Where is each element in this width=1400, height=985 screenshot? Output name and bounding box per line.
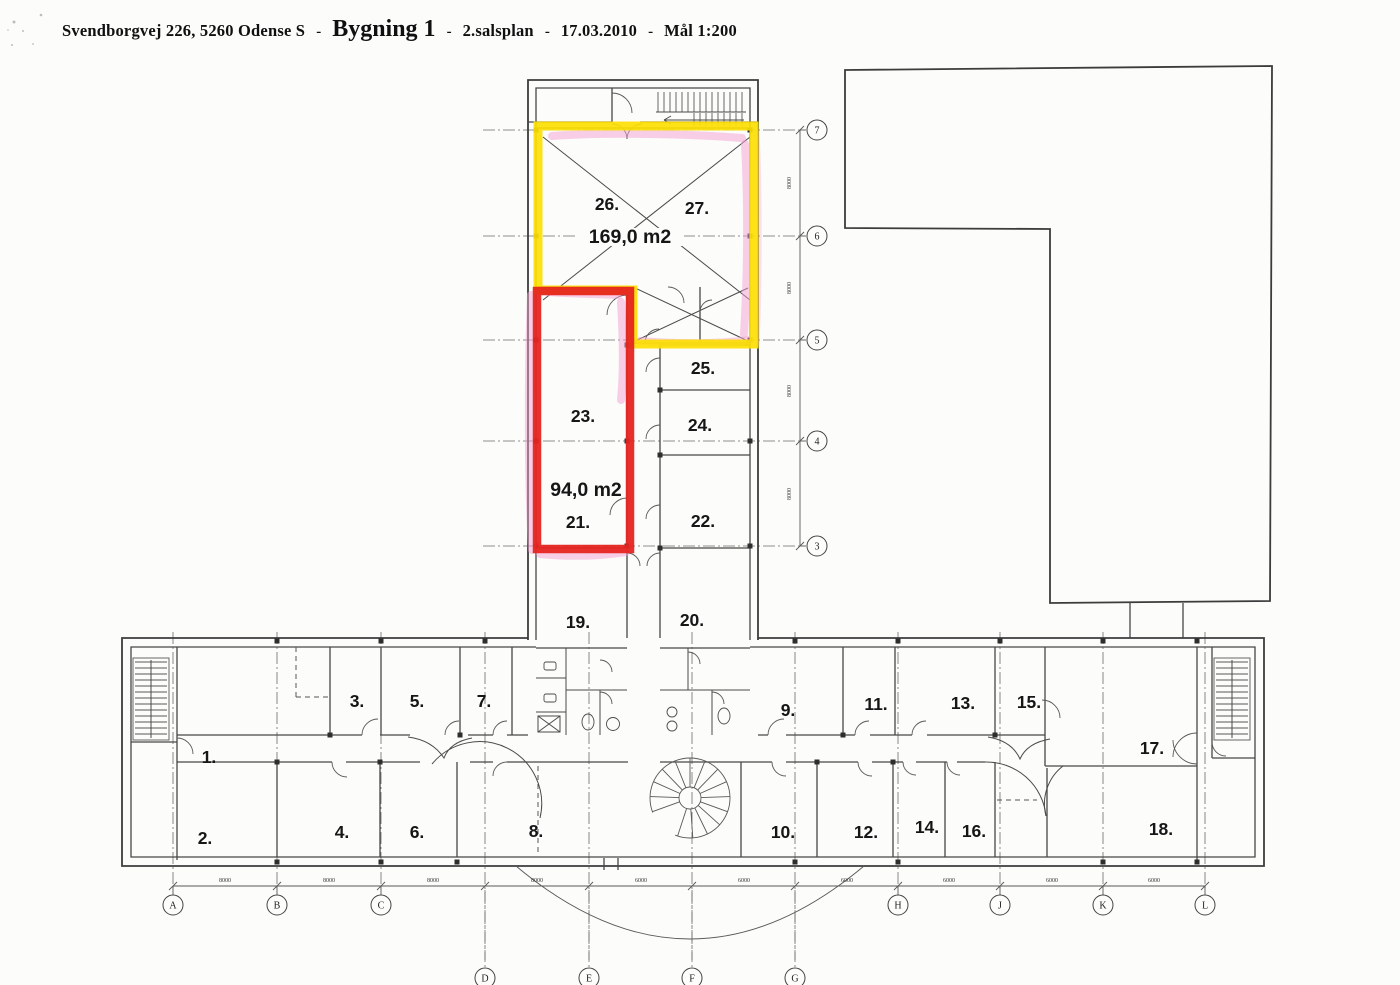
column-marker xyxy=(896,639,901,644)
grid-axes: 765438000800080008000ABCDEFGHJKL80008000… xyxy=(163,120,1215,985)
grid-bubble-label-H: H xyxy=(894,901,901,912)
area-labels: 169,0 m294,0 m2 xyxy=(550,226,684,501)
column-marker xyxy=(275,860,280,865)
dim-text: 6000 xyxy=(738,878,750,884)
grid-bubble-label-6: 6 xyxy=(815,232,820,243)
floor-plan-drawing: 765438000800080008000ABCDEFGHJKL80008000… xyxy=(0,0,1400,985)
grid-bubble-label-3: 3 xyxy=(815,542,820,553)
column-marker xyxy=(1101,639,1106,644)
column-marker xyxy=(891,760,896,765)
column-marker xyxy=(658,453,663,458)
room-label-22: 22. xyxy=(691,511,715,531)
shaft-cross xyxy=(538,716,560,732)
grid-bubble-label-A: A xyxy=(169,901,177,912)
area-label-1: 169,0 m2 xyxy=(589,226,672,248)
room-label-8: 8. xyxy=(529,821,544,841)
dim-text: 8000 xyxy=(323,878,335,884)
grid-bubble-label-5: 5 xyxy=(815,336,820,347)
dim-text: 6000 xyxy=(943,878,955,884)
entrance-jambs xyxy=(604,858,618,870)
stairhall-walls xyxy=(131,647,1255,758)
column-marker xyxy=(458,733,463,738)
grid-bubble-label-B: B xyxy=(274,901,281,912)
column-marker xyxy=(793,860,798,865)
column-marker xyxy=(815,760,820,765)
column-marker xyxy=(379,639,384,644)
dim-text: 6000 xyxy=(1148,878,1160,884)
area-label-2: 94,0 m2 xyxy=(550,479,622,501)
column-marker xyxy=(1195,639,1200,644)
room-label-23: 23. xyxy=(571,406,595,426)
grid-bubble-label-K: K xyxy=(1099,901,1107,912)
grid-bubble-label-L: L xyxy=(1202,901,1208,912)
column-marker xyxy=(275,639,280,644)
dim-text: 8000 xyxy=(531,878,543,884)
sink xyxy=(544,662,556,670)
room-label-26: 26. xyxy=(595,194,619,214)
grid-bubble-label-D: D xyxy=(481,974,488,985)
column-marker xyxy=(1195,860,1200,865)
basin xyxy=(667,721,677,731)
grid-bubble-label-J: J xyxy=(998,901,1002,912)
toilet-partitions xyxy=(536,648,750,735)
door-swings xyxy=(177,93,1226,777)
room-label-5: 5. xyxy=(410,691,425,711)
dim-text: 6000 xyxy=(1046,878,1058,884)
spiral-staircase xyxy=(644,758,730,843)
dim-text: 8000 xyxy=(219,878,231,884)
room-label-11: 11. xyxy=(864,694,887,714)
room-label-7: 7. xyxy=(477,691,492,711)
column-marker xyxy=(483,639,488,644)
wall-bottom-band xyxy=(277,762,1197,857)
room-label-20: 20. xyxy=(680,610,704,630)
dim-text: 8000 xyxy=(787,385,793,397)
room-label-14: 14. xyxy=(915,817,939,837)
dim-text: 6000 xyxy=(841,878,853,884)
column-marker xyxy=(896,860,901,865)
room-label-3: 3. xyxy=(350,691,365,711)
grid-bubble-label-4: 4 xyxy=(815,437,820,448)
basin xyxy=(607,718,620,731)
room-label-6: 6. xyxy=(410,822,425,842)
room-label-27: 27. xyxy=(685,198,709,218)
room-label-17: 17. xyxy=(1140,738,1164,758)
north-wing-walls xyxy=(528,88,758,648)
column-marker xyxy=(455,860,460,865)
column-marker xyxy=(275,760,280,765)
column-marker xyxy=(378,760,383,765)
room-label-1: 1. xyxy=(202,747,217,767)
grid-bubble-label-F: F xyxy=(689,974,695,985)
basin xyxy=(667,707,677,717)
room-label-4: 4. xyxy=(335,822,350,842)
grid-bubble-label-G: G xyxy=(791,974,798,985)
column-marker xyxy=(658,546,663,551)
room-label-9: 9. xyxy=(781,700,796,720)
dim-text: 8000 xyxy=(787,488,793,500)
stair-top-treads xyxy=(658,92,742,112)
floor-plan-page: Svendborgvej 226, 5260 Odense S - Bygnin… xyxy=(0,0,1400,985)
room-label-13: 13. xyxy=(951,693,975,713)
column-marker xyxy=(379,860,384,865)
sanitary-fixtures xyxy=(544,662,730,731)
room-label-15: 15. xyxy=(1017,692,1041,712)
adjacent-building-outline xyxy=(845,66,1272,638)
toilet xyxy=(582,714,594,730)
dim-text: 6000 xyxy=(635,878,647,884)
room-label-18: 18. xyxy=(1149,819,1173,839)
room-label-21: 21. xyxy=(566,512,590,532)
scan-artifacts xyxy=(7,14,42,46)
column-marker xyxy=(998,639,1003,644)
room-label-10: 10. xyxy=(771,822,795,842)
column-marker xyxy=(748,439,753,444)
room-label-25: 25. xyxy=(691,358,715,378)
column-marker xyxy=(658,388,663,393)
toilet xyxy=(718,708,730,724)
wall-top-band xyxy=(177,647,1197,860)
room-label-19: 19. xyxy=(566,612,590,632)
room-label-2: 2. xyxy=(198,828,213,848)
room-label-16: 16. xyxy=(962,821,986,841)
grid-bubble-label-7: 7 xyxy=(815,126,820,137)
grid-bubble-label-C: C xyxy=(378,901,385,912)
dim-text: 8000 xyxy=(427,878,439,884)
room-label-12: 12. xyxy=(854,822,878,842)
dim-text: 8000 xyxy=(787,177,793,189)
room-label-24: 24. xyxy=(688,415,712,435)
dim-text: 8000 xyxy=(787,282,793,294)
column-marker xyxy=(748,544,753,549)
column-marker xyxy=(841,733,846,738)
column-marker xyxy=(793,639,798,644)
building-connector xyxy=(1130,603,1183,638)
column-markers xyxy=(275,128,1200,865)
entrance-canopy-arc xyxy=(516,866,864,939)
grid-bubble-label-E: E xyxy=(586,974,592,985)
sink xyxy=(544,694,556,702)
column-marker xyxy=(993,733,998,738)
column-marker xyxy=(1101,860,1106,865)
vestibule-curves xyxy=(408,737,1063,818)
column-marker xyxy=(328,733,333,738)
